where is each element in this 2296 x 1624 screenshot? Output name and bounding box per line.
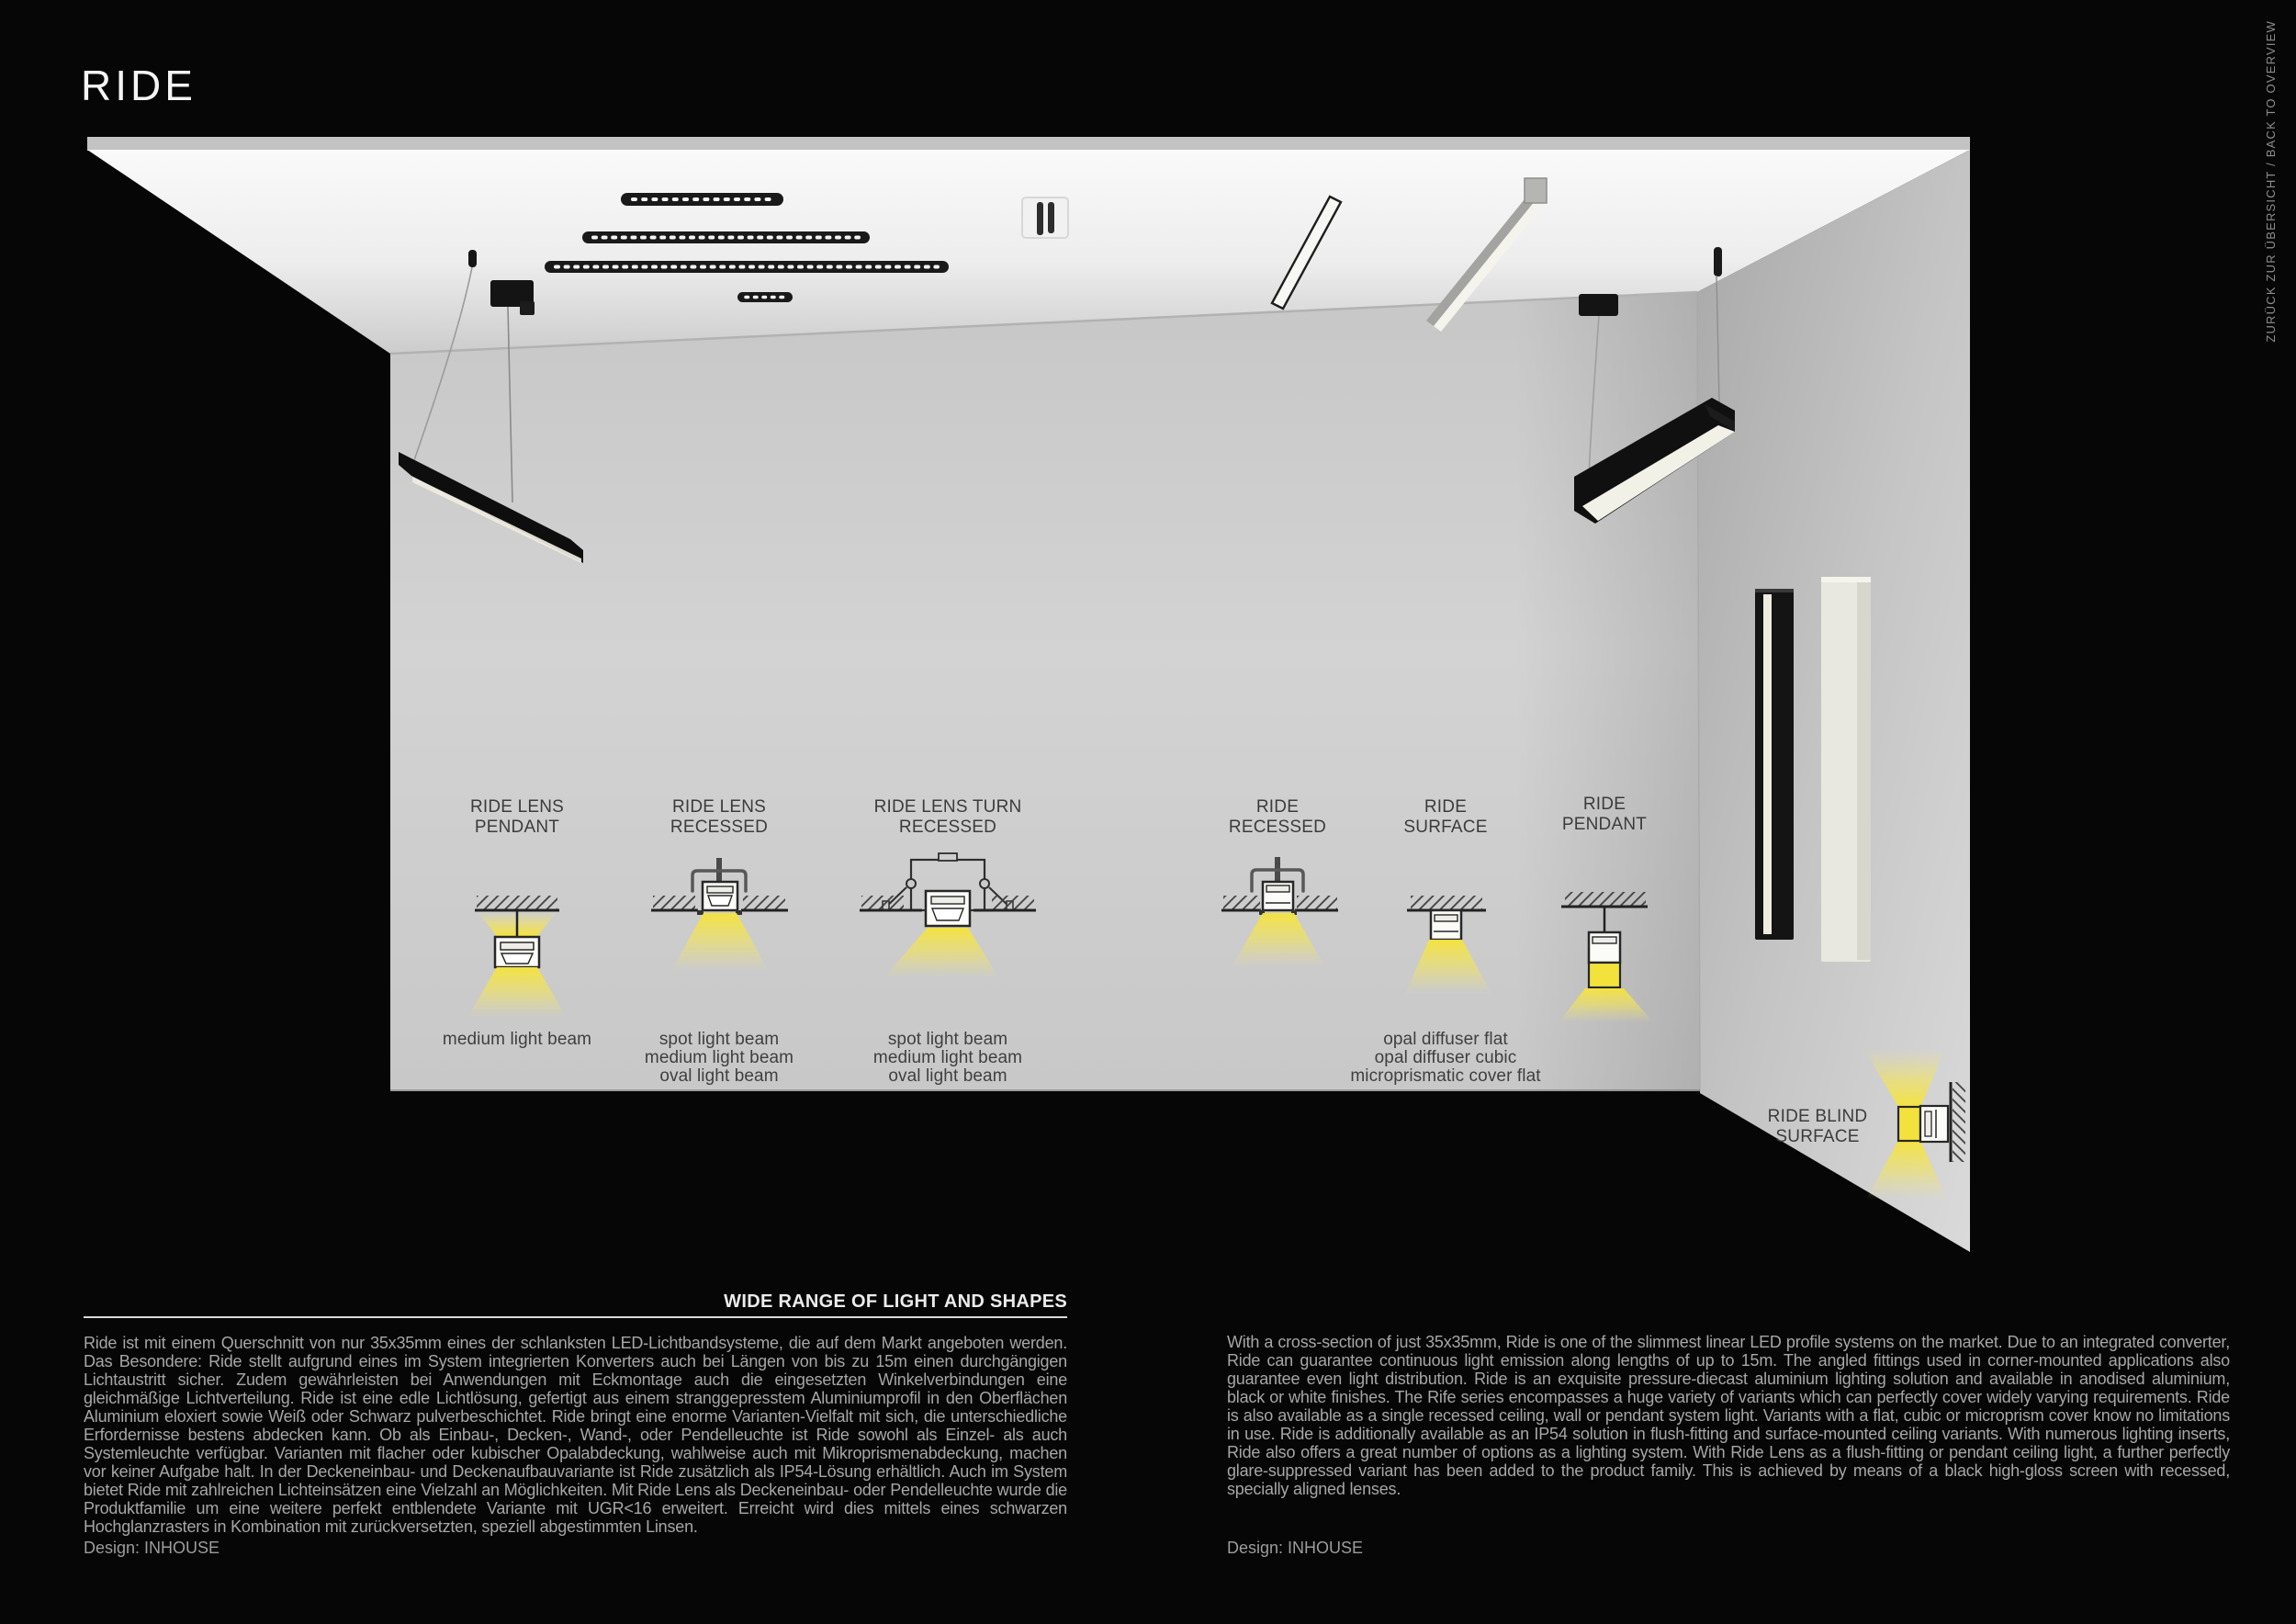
ceiling-hatch [992, 896, 1034, 910]
beam-caption: spot light beam [659, 1030, 779, 1049]
beam-caption: medium light beam [873, 1048, 1022, 1067]
diagram-label: RECESSED [670, 818, 768, 837]
beam-caption: oval light beam [888, 1066, 1007, 1086]
fixture-profile [1263, 882, 1293, 910]
ceiling-hatch [1297, 896, 1337, 910]
beam-caption: spot light beam [888, 1030, 1007, 1049]
led-strip-1 [621, 193, 783, 206]
led-strip-4 [737, 292, 793, 302]
wall-hatch [1953, 1082, 1965, 1162]
diagram-label: RIDE [1583, 795, 1626, 814]
ceiling-hatch [861, 896, 904, 910]
opal-diffuser-glowing [1898, 1107, 1920, 1141]
diagram-label: RIDE [1256, 797, 1299, 817]
ceiling-hatch [1411, 896, 1482, 910]
diagram-label: RECESSED [899, 818, 996, 837]
heading-rule [84, 1316, 1067, 1318]
diagram-label: RIDE LENS [672, 797, 766, 817]
diagram-label: RECESSED [1229, 818, 1326, 837]
beam-caption: microprismatic cover flat [1350, 1066, 1541, 1086]
beam-caption: medium light beam [443, 1030, 591, 1049]
diagram-label: SURFACE [1775, 1127, 1859, 1146]
section-heading: WIDE RANGE OF LIGHT AND SHAPES [84, 1291, 1067, 1313]
pivot-hinge [906, 879, 916, 888]
back-wall [390, 292, 1700, 1091]
paragraph-german: Ride ist mit einem Querschnitt von nur 3… [84, 1334, 1067, 1536]
ceiling-hatch [743, 896, 785, 910]
ceiling-twin-slot-fixture [1022, 197, 1068, 238]
diagram-label: SURFACE [1403, 818, 1487, 837]
beam-caption: opal diffuser flat [1383, 1030, 1508, 1049]
fixture-profile [1920, 1106, 1948, 1142]
ceiling-hatch [1565, 892, 1646, 906]
design-credit: Design: INHOUSE [84, 1539, 219, 1558]
fixture-profile [1431, 910, 1461, 940]
text-column-english: With a cross-section of just 35x35mm, Ri… [1227, 1291, 2230, 1498]
led-strip-2 [582, 231, 870, 243]
cord-anchor-left [468, 250, 477, 267]
opal-diffuser-glowing [1589, 963, 1620, 987]
beam-caption: medium light beam [645, 1048, 793, 1067]
ceiling-canopy-right [1579, 294, 1618, 316]
diagram-label: PENDANT [1562, 815, 1647, 834]
pivot-hinge [980, 879, 989, 888]
beam-caption: opal diffuser cubic [1375, 1048, 1517, 1067]
ceiling-hatch [1223, 896, 1260, 910]
wall-bar-black [1755, 589, 1794, 940]
fixture-profile [1589, 932, 1620, 963]
diagram-label: RIDE LENS [470, 797, 564, 817]
fixture-profile [703, 882, 737, 910]
ceiling-slab-edge [87, 137, 1970, 151]
fixture-profile [495, 937, 539, 967]
fixture-profile [926, 891, 970, 926]
text-column-german: WIDE RANGE OF LIGHT AND SHAPES Ride ist … [84, 1291, 1067, 1536]
diagram-label: RIDE LENS TURN [874, 797, 1022, 817]
ceiling-hatch [477, 896, 557, 910]
led-strip-3 [545, 261, 949, 273]
design-credit: Design: INHOUSE [1227, 1539, 1363, 1558]
diagram-label: PENDANT [475, 818, 559, 837]
ceiling-hatch [653, 896, 695, 910]
paragraph-english: With a cross-section of just 35x35mm, Ri… [1227, 1333, 2230, 1498]
cord-anchor-right [1714, 247, 1722, 276]
beam-caption: oval light beam [659, 1066, 778, 1086]
catalog-page: RIDE ZURÜCK ZUR ÜBERSICHT / BACK TO OVER… [0, 0, 2296, 1624]
room-shell [87, 137, 1970, 1252]
wall-bar-white [1821, 577, 1871, 962]
diagram-label: RIDE BLIND [1768, 1107, 1868, 1126]
diagram-label: RIDE [1424, 797, 1467, 817]
